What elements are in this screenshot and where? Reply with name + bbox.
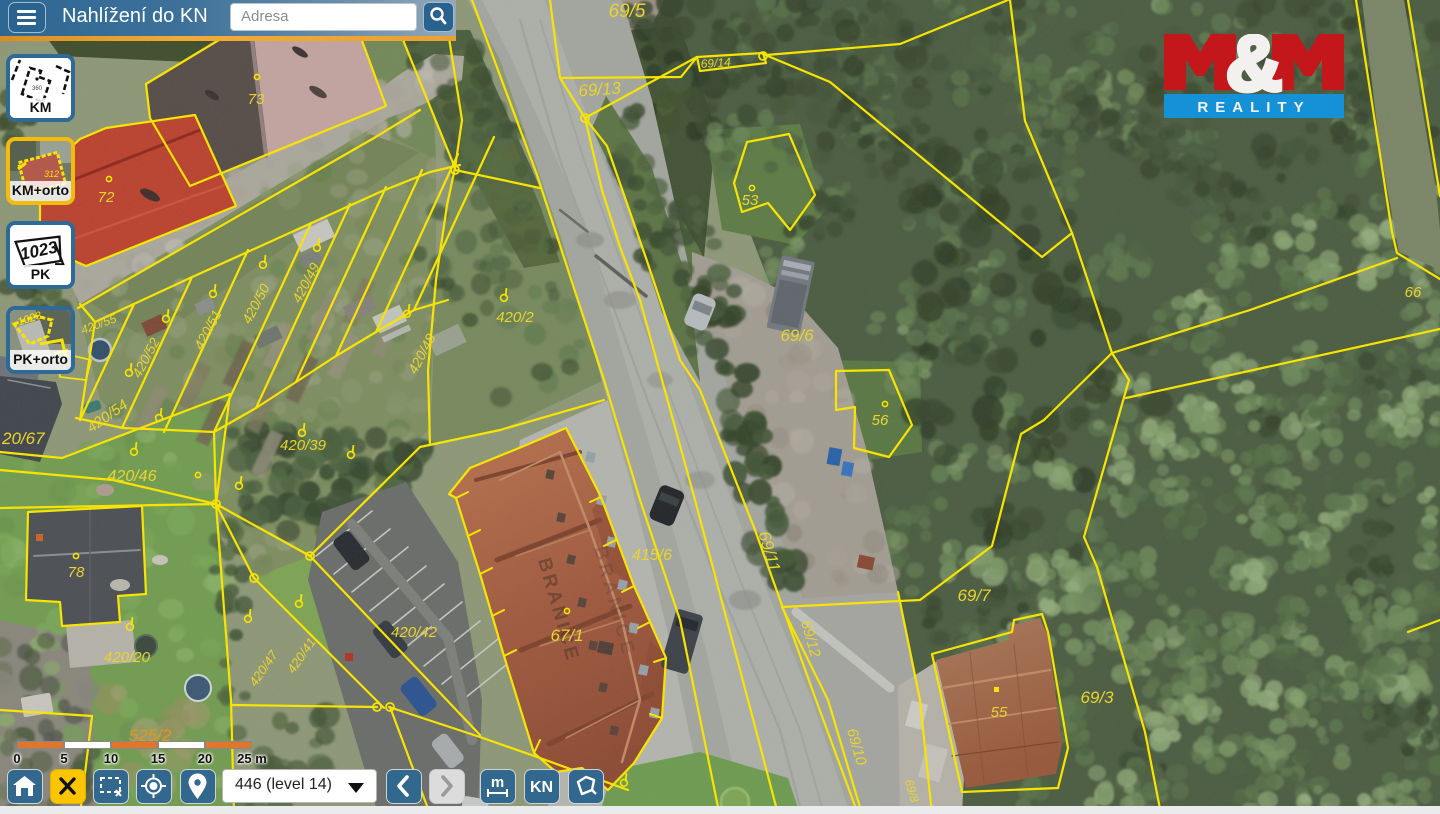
svg-text:420/39: 420/39 [280, 437, 327, 454]
svg-text:69/13: 69/13 [578, 79, 622, 101]
svg-text:m: m [491, 774, 504, 791]
svg-text:420/46: 420/46 [108, 468, 157, 485]
svg-text:69/6: 69/6 [780, 326, 814, 345]
svg-text:20/67: 20/67 [1, 429, 45, 448]
svg-text:73: 73 [248, 91, 265, 108]
svg-text:78: 78 [68, 564, 85, 581]
svg-text:415/6: 415/6 [632, 547, 672, 564]
svg-text:53: 53 [742, 192, 759, 209]
svg-text:69/7: 69/7 [957, 586, 991, 605]
svg-text:69/5: 69/5 [609, 1, 646, 22]
svg-text:420/2: 420/2 [496, 309, 534, 326]
svg-text:66: 66 [1405, 284, 1422, 301]
svg-text:420/20: 420/20 [104, 649, 151, 666]
svg-text:420/42: 420/42 [391, 624, 438, 641]
svg-text:69/3: 69/3 [1080, 688, 1114, 707]
svg-text:56: 56 [872, 412, 889, 429]
svg-text:KN: KN [530, 779, 553, 796]
svg-text:67/1: 67/1 [550, 626, 583, 645]
svg-text:55: 55 [991, 704, 1008, 721]
svg-text:69/14: 69/14 [700, 55, 731, 71]
svg-text:72: 72 [98, 189, 115, 206]
svg-text:312: 312 [44, 169, 59, 179]
svg-text:360: 360 [32, 86, 43, 92]
svg-text:REALITY: REALITY [1197, 99, 1310, 116]
